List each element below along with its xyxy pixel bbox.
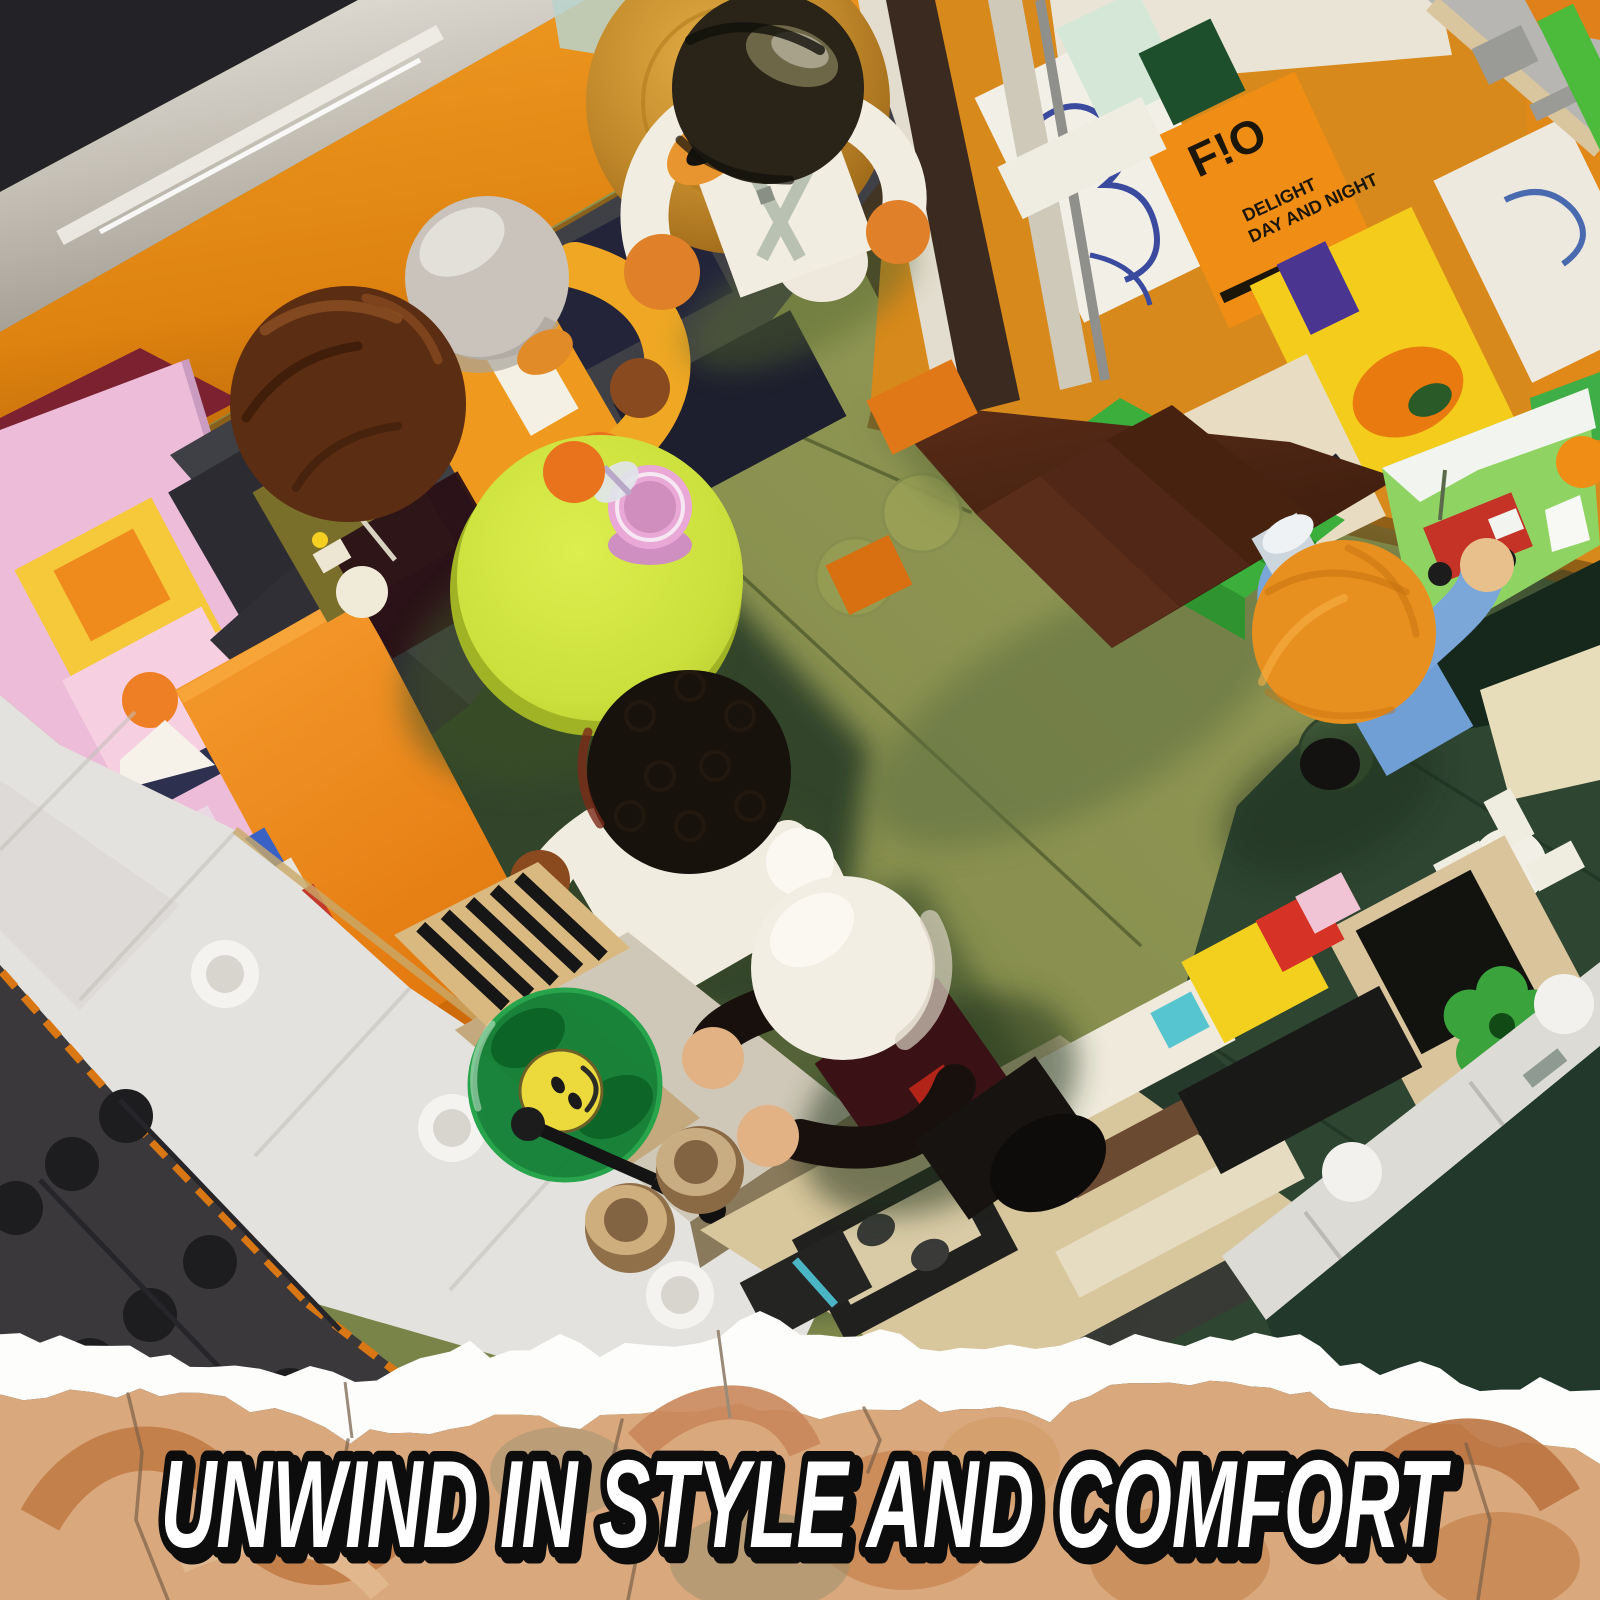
svg-text:UNWIND IN STYLE AND COMFORT: UNWIND IN STYLE AND COMFORT xyxy=(161,1436,1452,1574)
